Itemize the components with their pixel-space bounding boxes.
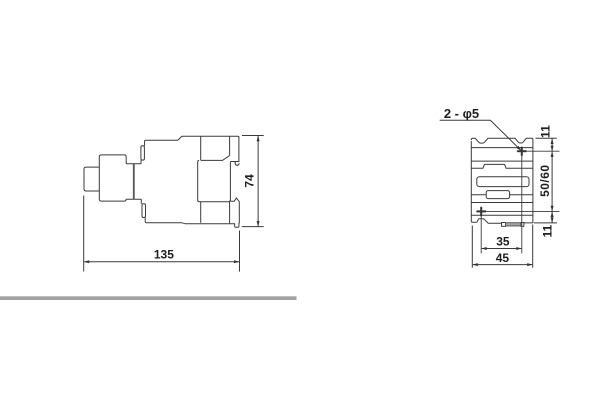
svg-text:45: 45: [496, 251, 510, 265]
svg-text:2 - φ5: 2 - φ5: [444, 106, 479, 121]
svg-text:11: 11: [538, 125, 552, 138]
svg-text:135: 135: [154, 248, 174, 262]
svg-text:11: 11: [541, 225, 555, 238]
svg-text:74: 74: [243, 174, 257, 188]
svg-text:35: 35: [496, 235, 510, 249]
svg-text:50/60: 50/60: [538, 165, 552, 197]
